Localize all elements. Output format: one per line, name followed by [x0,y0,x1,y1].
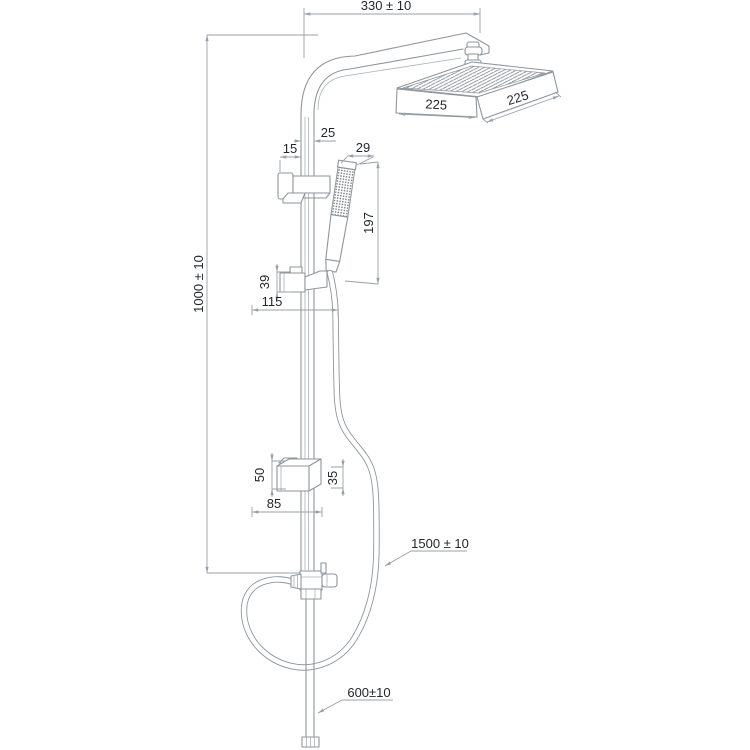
hand-shower-cone [324,259,339,272]
dim-hose-length-label: 1500 ± 10 [411,536,469,551]
dim-hand-shower-length-label: 197 [361,212,376,234]
upper-wall-bracket [278,173,330,203]
dim-pipe-offset: 25 [294,125,336,146]
upper-bracket-foot [283,193,305,203]
upper-bracket-body [293,176,330,193]
hand-shower-handle [324,215,347,262]
slider-bracket [280,267,327,292]
dim-lower-bracket-width: 35 [325,459,343,496]
dim-outlet-hose-length: 600±10 [318,685,393,713]
dim-slider-offset-label: 115 [262,294,283,309]
hand-shower-spray-face [331,167,355,217]
dim-lower-bracket-offset: 85 [252,496,322,517]
dim-pipe-offset-label: 25 [321,125,335,140]
dim-wall-offset-label: 15 [283,141,297,156]
slider-tab [290,267,302,273]
technical-drawing-canvas: 330 ± 10 1000 ± 10 225 225 25 15 29 [0,0,750,750]
hose-nut [291,574,301,589]
dim-top-width-label: 330 ± 10 [361,0,412,13]
diverter-hex-nut [301,589,321,599]
diverter-knob [322,574,337,587]
dim-wall-offset: 15 [280,141,301,172]
dim-hand-shower-width-label: 29 [356,140,370,155]
dim-slider-offset: 115 [252,294,338,315]
lower-wall-bracket [277,458,321,491]
dim-lower-bracket-offset-label: 85 [267,496,281,511]
dim-hose-length: 1500 ± 10 [385,536,469,566]
dim-column-height-label: 1000 ± 10 [191,255,206,313]
diverter-pin [321,563,326,573]
lower-bracket-front-face [277,466,309,491]
rain-shower-head [396,62,558,119]
dim-top-width: 330 ± 10 [304,0,480,58]
dim-lower-bracket-width-label: 35 [325,471,340,485]
dim-slider-height-label: 39 [257,275,272,289]
shower-column-drawing-page: 330 ± 10 1000 ± 10 225 225 25 15 29 [0,0,750,750]
dim-outlet-hose-label: 600±10 [347,685,390,700]
outlet-hose [302,599,319,747]
dim-head-front-label: 225 [425,96,447,112]
dim-lower-bracket-height-label: 50 [252,468,267,482]
diverter-body [300,571,322,590]
dim-column-height: 1000 ± 10 [191,35,318,573]
